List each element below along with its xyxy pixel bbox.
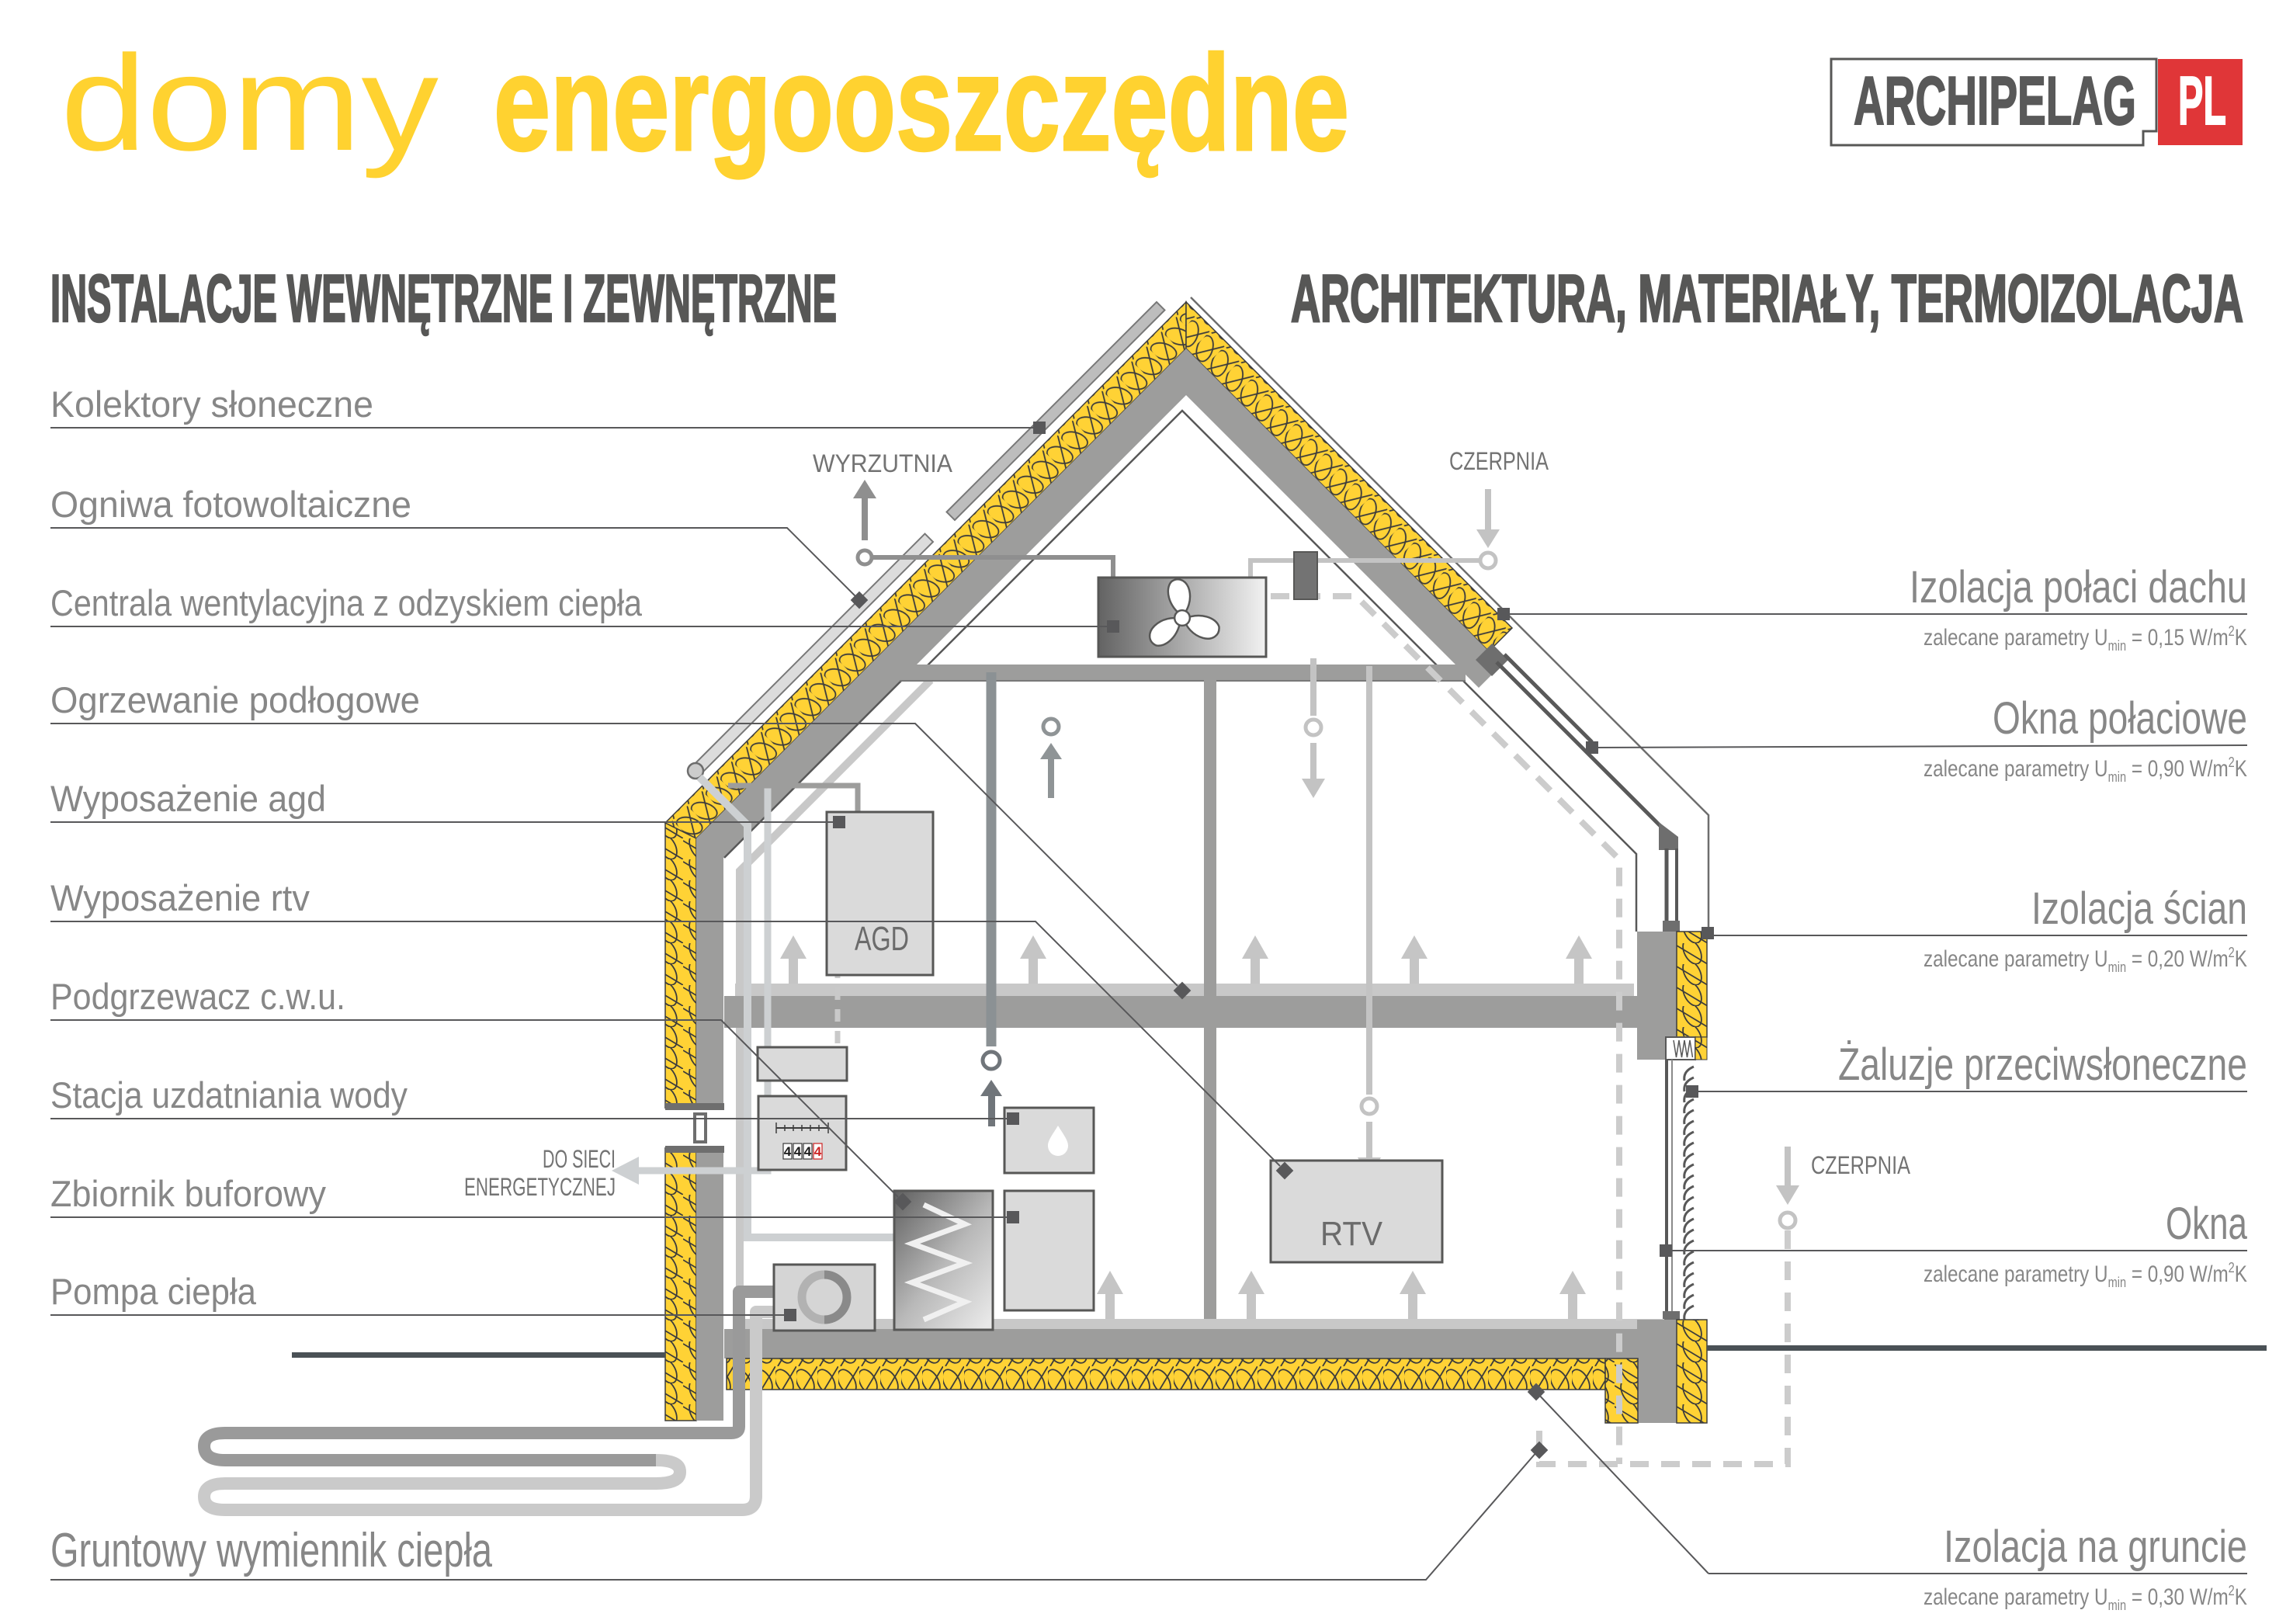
svg-text:WYRZUTNIA: WYRZUTNIA	[813, 449, 953, 477]
svg-text:Izolacja ścian: Izolacja ścian	[2031, 883, 2247, 934]
svg-text:AGD: AGD	[855, 920, 909, 958]
svg-text:zalecane parametry Umin = 0,20: zalecane parametry Umin = 0,20 W/m2K	[1924, 945, 2247, 975]
svg-text:4: 4	[814, 1144, 822, 1159]
svg-text:Pompa ciepła: Pompa ciepła	[50, 1271, 257, 1312]
svg-text:Żaluzje przeciwsłoneczne: Żaluzje przeciwsłoneczne	[1838, 1039, 2247, 1090]
svg-text:Gruntowy wymiennik ciepła: Gruntowy wymiennik ciepła	[50, 1524, 492, 1577]
svg-text:zalecane parametry Umin = 0,30: zalecane parametry Umin = 0,30 W/m2K	[1924, 1583, 2247, 1613]
svg-text:Okna: Okna	[2166, 1199, 2248, 1249]
svg-text:Zbiornik buforowy: Zbiornik buforowy	[50, 1173, 326, 1214]
svg-text:Centrala wentylacyjna z odzysk: Centrala wentylacyjna z odzyskiem ciepła	[50, 582, 643, 623]
svg-text:Ogniwa fotowoltaiczne: Ogniwa fotowoltaiczne	[50, 484, 411, 525]
svg-text:zalecane parametry Umin = 0,90: zalecane parametry Umin = 0,90 W/m2K	[1924, 1260, 2247, 1290]
svg-text:Wyposażenie rtv: Wyposażenie rtv	[50, 877, 310, 918]
svg-text:ENERGETYCZNEJ: ENERGETYCZNEJ	[464, 1173, 616, 1201]
svg-text:Ogrzewanie podłogowe: Ogrzewanie podłogowe	[50, 679, 420, 720]
svg-text:RTV: RTV	[1320, 1215, 1383, 1253]
svg-text:Stacja uzdatniania wody: Stacja uzdatniania wody	[50, 1074, 408, 1116]
svg-text:INSTALACJE WEWNĘTRZNE I ZEWNĘT: INSTALACJE WEWNĘTRZNE I ZEWNĘTRZNE	[50, 262, 837, 336]
svg-text:ARCHITEKTURA, MATERIAŁY, TERMO: ARCHITEKTURA, MATERIAŁY, TERMOIZOLACJA	[1291, 262, 2243, 336]
svg-text:domy: domy	[61, 28, 439, 179]
svg-text:Okna połaciowe: Okna połaciowe	[1993, 693, 2247, 744]
svg-text:energooszczędne: energooszczędne	[494, 28, 1349, 179]
svg-text:Kolektory słoneczne: Kolektory słoneczne	[50, 383, 373, 425]
svg-text:DO SIECI: DO SIECI	[543, 1145, 616, 1173]
svg-text:CZERPNIA: CZERPNIA	[1449, 447, 1549, 475]
svg-text:zalecane parametry Umin = 0,15: zalecane parametry Umin = 0,15 W/m2K	[1924, 623, 2247, 654]
svg-text:Wyposażenie agd: Wyposażenie agd	[50, 778, 326, 819]
svg-text:Izolacja na gruncie: Izolacja na gruncie	[1944, 1522, 2247, 1572]
svg-text:PL: PL	[2178, 62, 2226, 139]
svg-text:Izolacja połaci dachu: Izolacja połaci dachu	[1910, 562, 2247, 612]
svg-text:4: 4	[784, 1144, 792, 1159]
svg-text:zalecane parametry Umin = 0,90: zalecane parametry Umin = 0,90 W/m2K	[1924, 755, 2247, 785]
svg-text:Podgrzewacz c.w.u.: Podgrzewacz c.w.u.	[50, 976, 345, 1017]
svg-text:ARCHIPELAG: ARCHIPELAG	[1854, 62, 2136, 139]
svg-text:CZERPNIA: CZERPNIA	[1811, 1151, 1911, 1179]
svg-text:4: 4	[794, 1144, 802, 1159]
svg-text:4: 4	[804, 1144, 812, 1159]
